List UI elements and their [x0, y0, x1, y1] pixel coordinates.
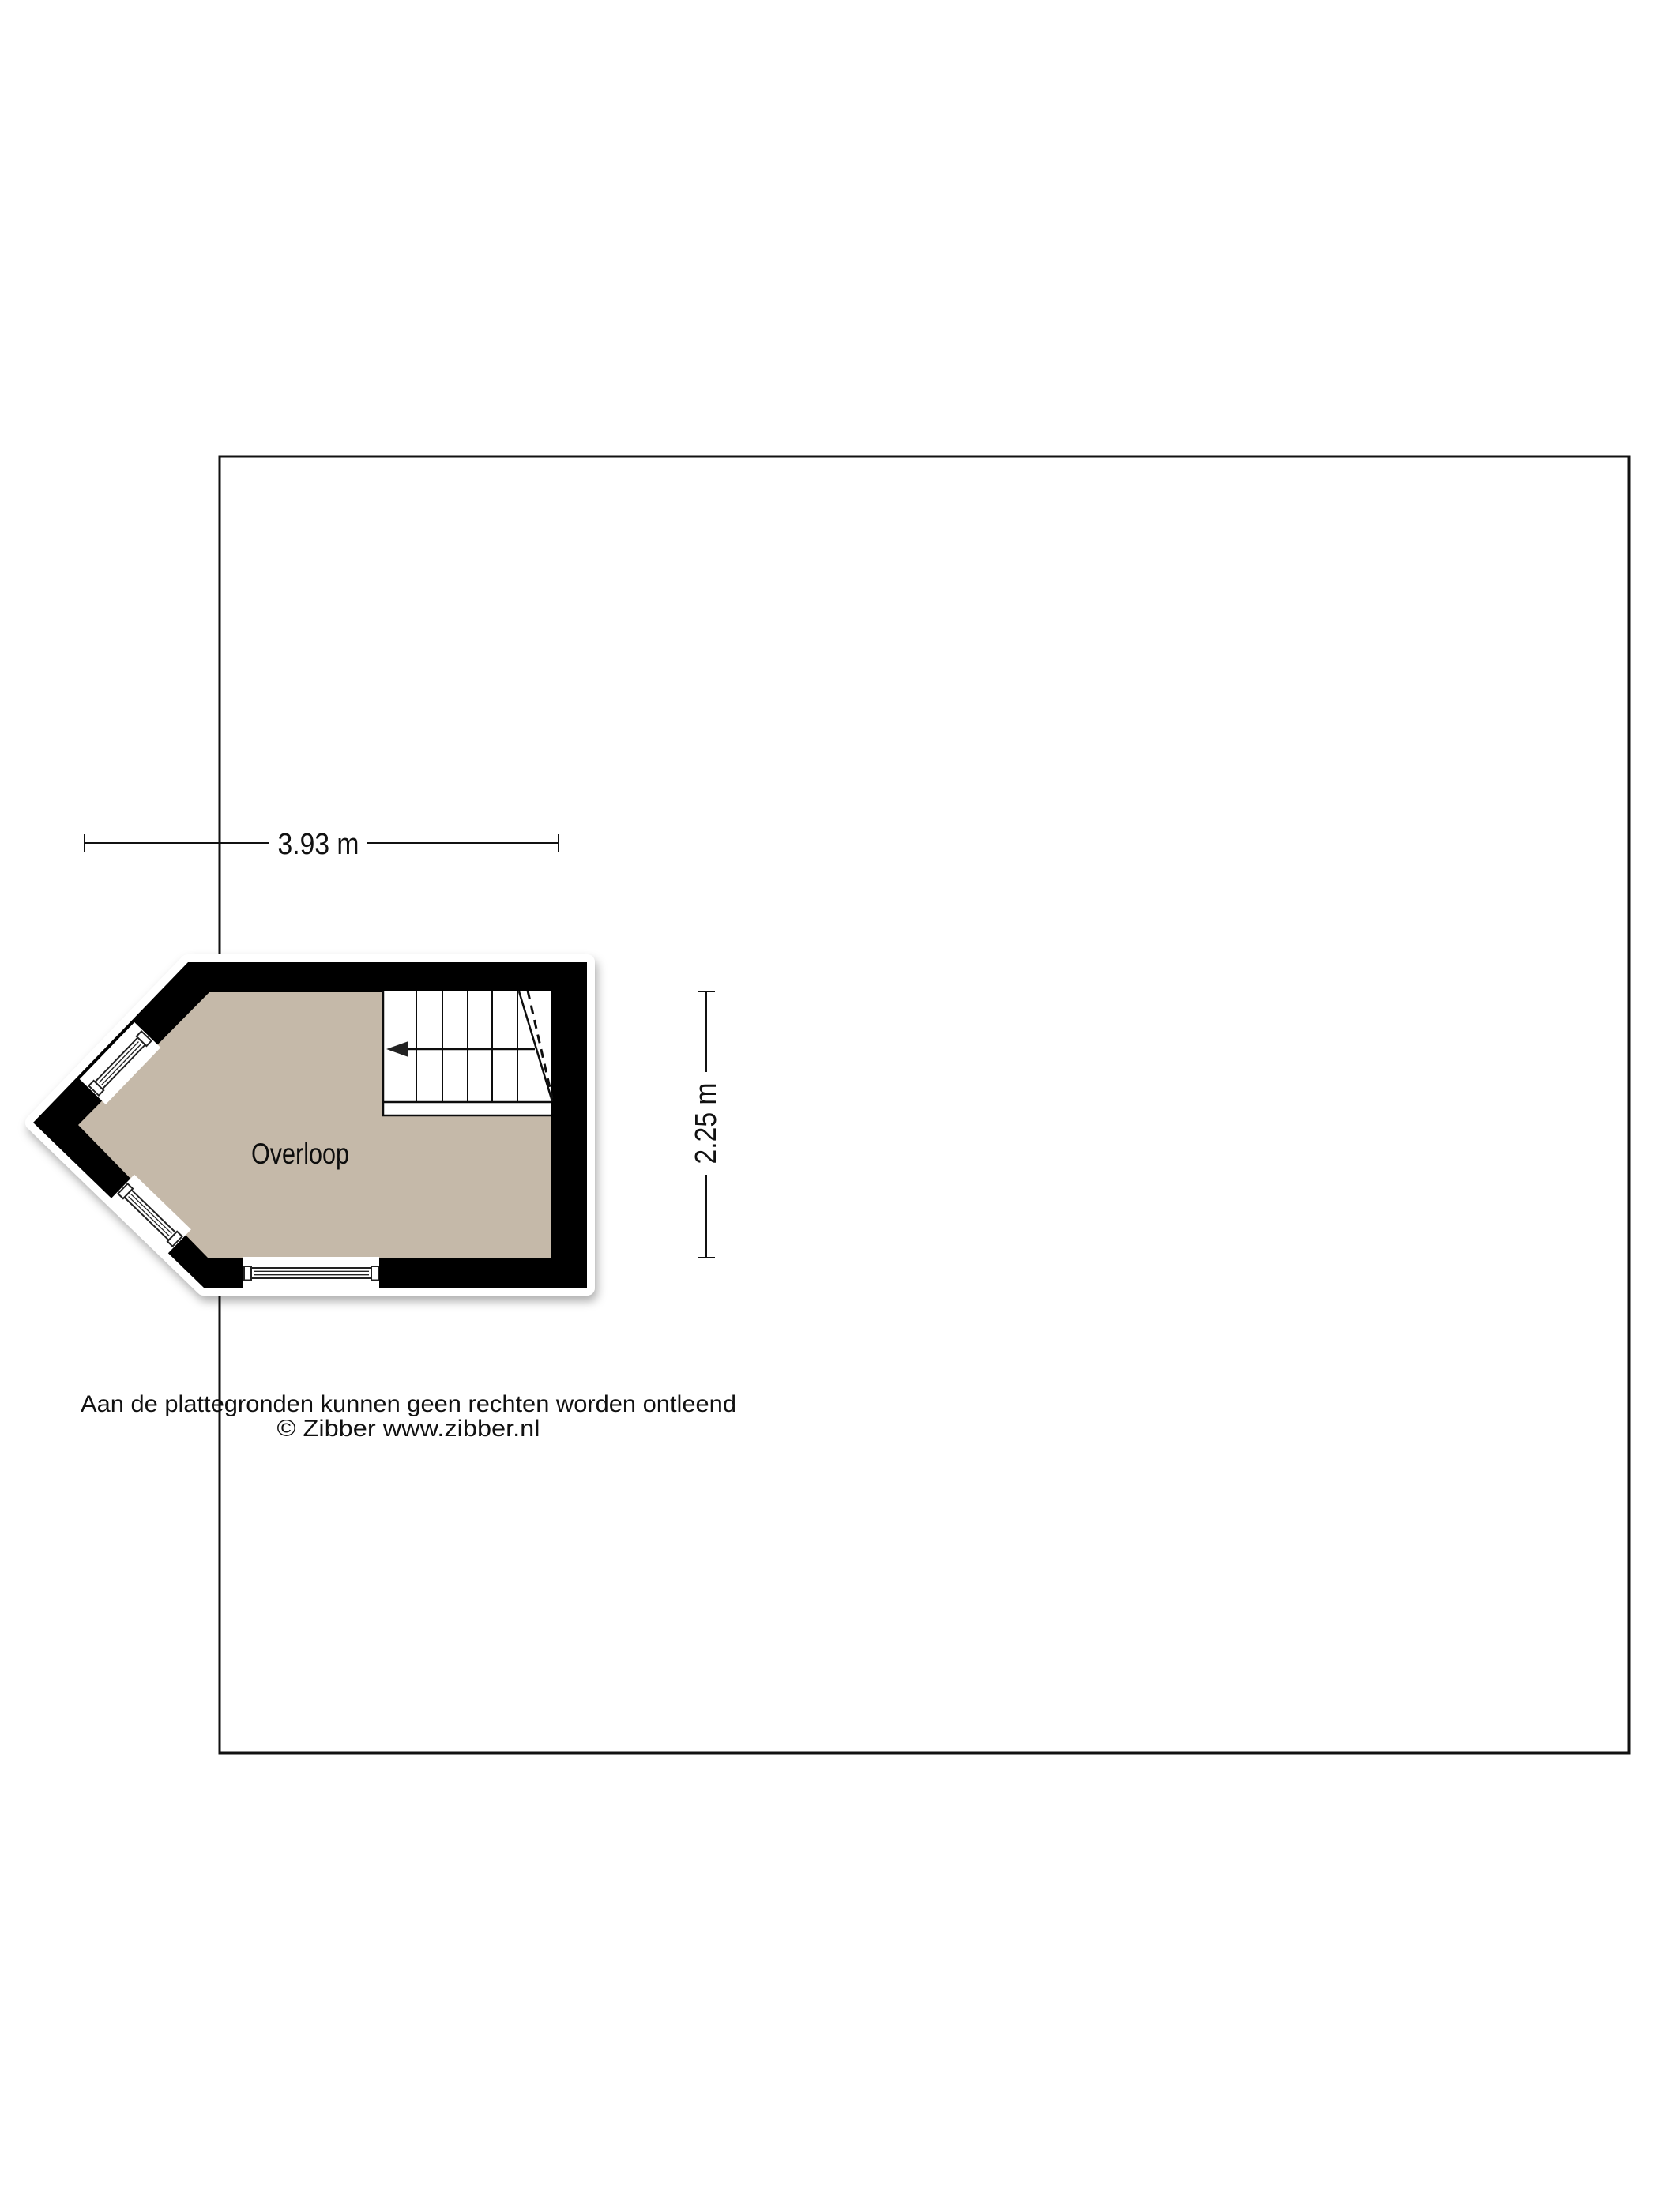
window-glazing: [251, 1268, 371, 1278]
footer: Aan de plattegronden kunnen geen rechten…: [81, 1391, 736, 1442]
width-dimension: 3.93 m: [85, 828, 559, 861]
window-end-post: [371, 1266, 378, 1281]
floorplan: Overloop: [33, 962, 587, 1288]
floorplan-canvas: 3.93 m 2.25 m: [0, 0, 1659, 2212]
footer-copyright: © Zibber www.zibber.nl: [277, 1416, 540, 1442]
room-label: Overloop: [251, 1138, 349, 1170]
width-dimension-label: 3.93 m: [278, 828, 359, 861]
stairs: [382, 991, 552, 1115]
window-bottom: [243, 1257, 379, 1288]
floorplan-page: 3.93 m 2.25 m: [0, 0, 1659, 2212]
footer-disclaimer: Aan de plattegronden kunnen geen rechten…: [81, 1391, 736, 1417]
height-dimension: 2.25 m: [690, 991, 723, 1258]
window-end-post: [244, 1266, 251, 1281]
stair-landing: [382, 1102, 551, 1115]
height-dimension-label: 2.25 m: [690, 1083, 723, 1164]
